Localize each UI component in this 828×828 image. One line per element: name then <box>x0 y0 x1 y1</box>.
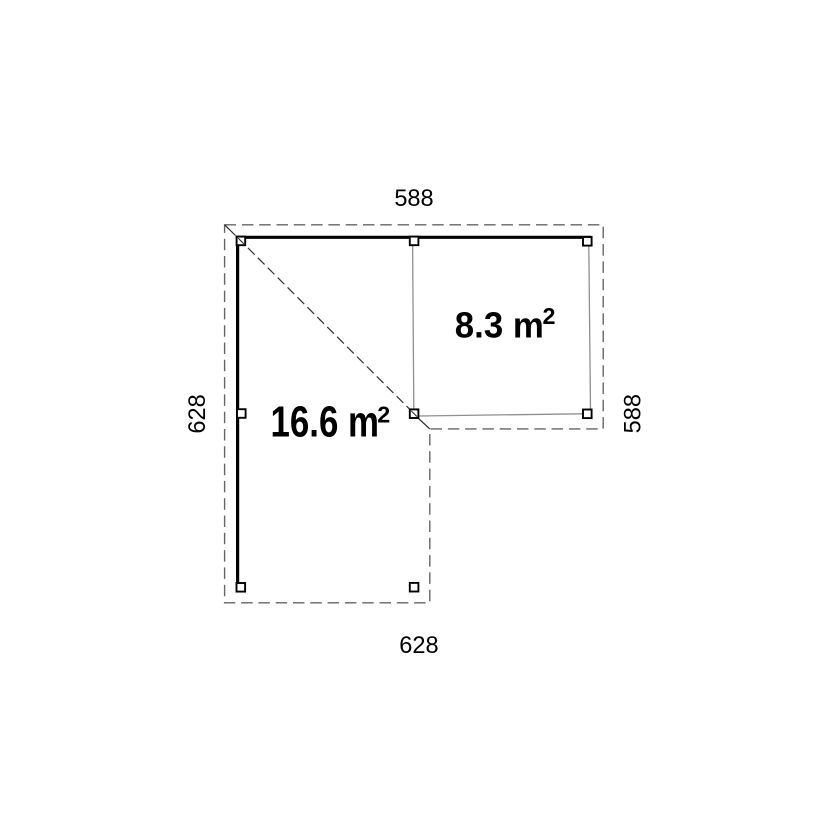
svg-text:8.3 m: 8.3 m <box>455 305 544 346</box>
svg-text:2: 2 <box>543 303 556 329</box>
svg-text:628: 628 <box>185 394 211 433</box>
svg-text:588: 588 <box>621 394 647 433</box>
svg-text:16.6 m: 16.6 m <box>271 399 380 447</box>
svg-text:628: 628 <box>399 633 438 659</box>
svg-text:588: 588 <box>394 186 433 212</box>
svg-text:2: 2 <box>377 402 390 428</box>
